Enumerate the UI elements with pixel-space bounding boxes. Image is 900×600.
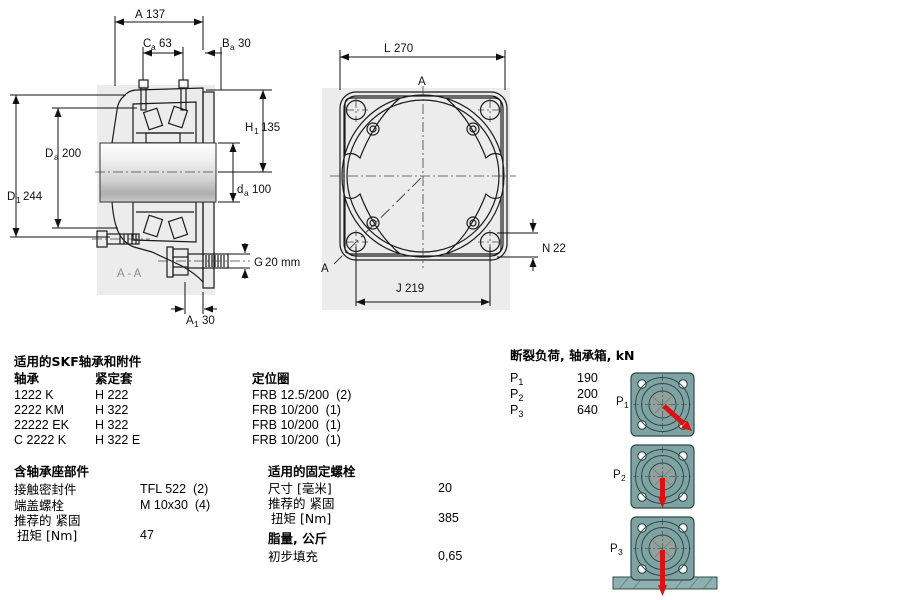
dim-H1-sub: 1 xyxy=(254,126,259,136)
ring-cell: FRB 10/200 (1) xyxy=(252,434,341,448)
dim-A-label: A xyxy=(135,9,143,21)
flange-view-drawing: L 270 J 219 N 22 A A xyxy=(321,43,566,310)
grease-label: 初步填充 xyxy=(268,550,318,564)
bolt-label: 推荐的 紧固 xyxy=(268,497,334,511)
load-direction-figures: P 1 P 2 P 3 xyxy=(610,373,717,596)
sleeve-cell: H 322 E xyxy=(95,434,140,448)
bolt-label: 扭矩 [Nm] xyxy=(271,512,331,526)
bearing-cell: 1222 K xyxy=(14,389,54,403)
part-value: TFL 522 (2) xyxy=(140,483,208,497)
part-label: 推荐的 紧固 xyxy=(14,514,80,528)
dim-L-label: L xyxy=(384,43,391,55)
dim-Ba-value: 30 xyxy=(238,38,251,50)
dim-N-label: N xyxy=(542,243,550,255)
col-header-sleeve: 紧定套 xyxy=(95,372,133,386)
dim-H1: H 1 135 xyxy=(206,90,280,172)
ring-cell: FRB 12.5/200 (2) xyxy=(252,389,351,403)
load-label: P2 xyxy=(510,388,523,404)
bearing-cell: 22222 EK xyxy=(14,419,69,433)
dim-A-value: 137 xyxy=(146,9,165,21)
breaking-loads-title: 断裂负荷, 轴承箱, kN xyxy=(510,349,634,363)
dim-Ba-sub: a xyxy=(230,42,235,52)
ring-cell: FRB 10/200 (1) xyxy=(252,404,341,418)
figure-label-p1: P xyxy=(616,396,624,408)
dim-H1-label: H xyxy=(245,122,253,134)
section-mark-bottom: A xyxy=(321,263,329,275)
technical-drawings: A 137 C a 63 B a 30 H 1 135 xyxy=(0,0,900,600)
shaft xyxy=(100,143,216,202)
dim-J-label: J xyxy=(396,283,402,295)
figure-label-p1-sub: 1 xyxy=(624,400,629,410)
col-header-bearing: 轴承 xyxy=(14,372,39,386)
dim-D1-label: D xyxy=(7,191,15,203)
load-label: P3 xyxy=(510,404,523,420)
part-label: 扭矩 [Nm] xyxy=(17,529,77,543)
bolt-label: 尺寸 [毫米] xyxy=(268,482,332,496)
figure-label-p2: P xyxy=(613,469,621,481)
grease-title: 脂量, 公斤 xyxy=(268,532,327,546)
dim-A1-value: 30 xyxy=(202,315,215,327)
part-label: 接触密封件 xyxy=(14,483,77,497)
dim-H1-value: 135 xyxy=(261,122,280,134)
bearing-cell: C 2222 K xyxy=(14,434,66,448)
load-figure-p2 xyxy=(631,445,694,508)
section-aa-label: A - A xyxy=(117,268,142,280)
load-figure-p1 xyxy=(631,373,694,436)
figure-label-p2-sub: 2 xyxy=(621,473,626,483)
bearing-cell: 2222 KM xyxy=(14,404,64,418)
dim-da-value: 100 xyxy=(252,184,271,196)
part-value: 47 xyxy=(140,529,154,543)
load-value: 200 xyxy=(577,388,598,402)
dim-Ca: C a 63 xyxy=(143,38,183,80)
fixing-bolts-title: 适用的固定螺栓 xyxy=(268,465,356,479)
dim-A1-sub: 1 xyxy=(194,319,199,329)
dim-D1-value: 244 xyxy=(23,191,43,203)
dim-A1-label: A xyxy=(186,315,194,327)
ring-cell: FRB 10/200 (1) xyxy=(252,419,341,433)
housing-parts-title: 含轴承座部件 xyxy=(14,465,89,479)
load-p-sub: 1 xyxy=(518,377,523,387)
dim-Da-value: 200 xyxy=(62,148,81,160)
load-p-sub: 2 xyxy=(518,393,523,403)
sleeve-cell: H 322 xyxy=(95,419,128,433)
load-p-sub: 3 xyxy=(518,409,523,419)
dim-Da-sub: a xyxy=(54,152,59,162)
figure-label-p3: P xyxy=(610,543,618,555)
dim-da-sub: a xyxy=(244,188,249,198)
dim-N-value: 22 xyxy=(553,243,566,255)
bolt-value: 20 xyxy=(438,482,452,496)
dim-da-label: d xyxy=(237,184,243,196)
sleeve-cell: H 222 xyxy=(95,389,128,403)
dim-Da-label: D xyxy=(45,148,53,160)
dim-Ca-value: 63 xyxy=(159,38,172,50)
load-value: 640 xyxy=(577,404,598,418)
dim-Ca-sub: a xyxy=(151,42,156,52)
sleeve-cell: H 322 xyxy=(95,404,128,418)
section-view-drawing: A 137 C a 63 B a 30 H 1 135 xyxy=(7,9,300,329)
dim-Ba-label: B xyxy=(222,38,230,50)
load-figure-p3 xyxy=(613,517,717,596)
load-label: P1 xyxy=(510,372,523,388)
load-value: 190 xyxy=(577,372,598,386)
dim-L-value: 270 xyxy=(394,43,413,55)
dim-J-value: 219 xyxy=(405,283,424,295)
dim-D1-sub: 1 xyxy=(16,195,21,205)
part-label: 端盖螺栓 xyxy=(14,499,64,513)
bearings-table-title: 适用的SKF轴承和附件 xyxy=(14,355,141,369)
figure-label-p3-sub: 3 xyxy=(618,547,623,557)
part-value: M 10x30 (4) xyxy=(140,499,210,513)
bolt-value: 385 xyxy=(438,512,459,526)
dim-G-label: G xyxy=(254,257,263,269)
bearing-datasheet-page: A 137 C a 63 B a 30 H 1 135 xyxy=(0,0,900,600)
col-header-ring: 定位圈 xyxy=(252,372,290,386)
section-mark-top: A xyxy=(418,76,426,88)
dim-G-value: 20 mm xyxy=(265,257,300,269)
grease-value: 0,65 xyxy=(438,550,462,564)
dim-Ba: B a 30 xyxy=(205,38,251,90)
